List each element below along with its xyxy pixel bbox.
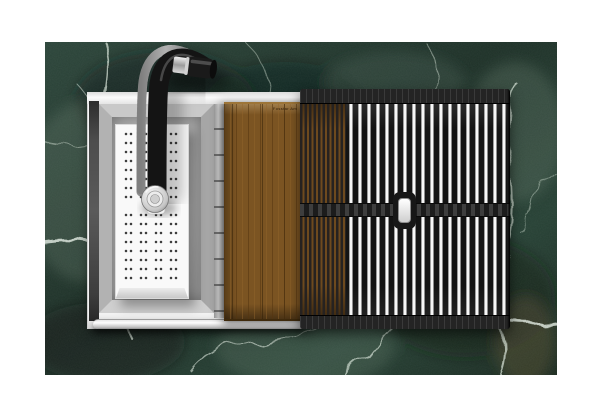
rack-bottom-band	[300, 315, 510, 329]
drying-rack	[300, 89, 510, 329]
rack-handle	[393, 192, 416, 229]
rack-handle-grip	[398, 198, 411, 223]
rack-right-edge	[507, 89, 510, 329]
colander-board	[115, 124, 189, 299]
board-seam	[284, 104, 285, 319]
board-seam	[232, 104, 233, 319]
rack-top-band	[300, 89, 510, 104]
ledge-rail-notches	[214, 104, 224, 318]
product-photo: Fosstar Am	[0, 0, 600, 420]
colander-hole-pattern	[122, 130, 182, 285]
colander-side-face	[116, 288, 188, 298]
sink-left-shadow	[89, 101, 99, 321]
board-seam	[262, 104, 263, 319]
